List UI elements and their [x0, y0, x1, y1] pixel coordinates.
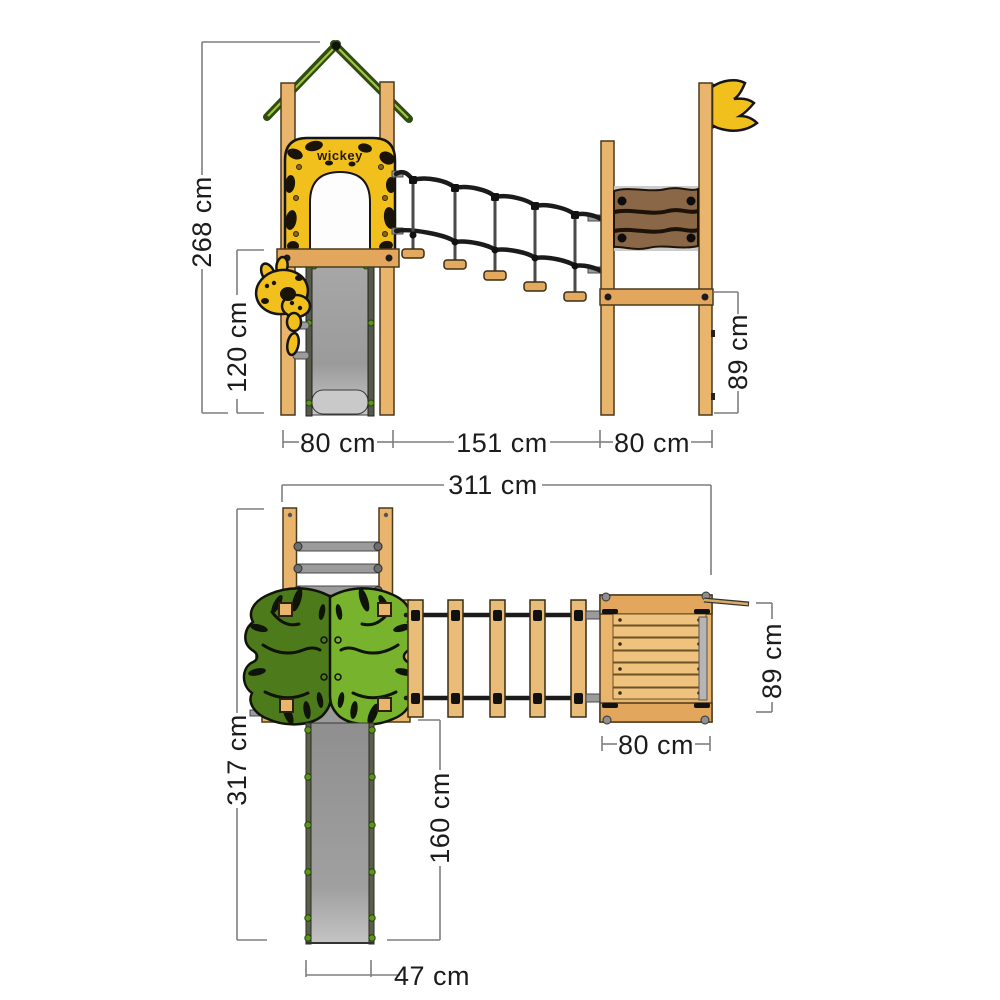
flag-icon [712, 80, 757, 131]
side-view: wickey [187, 42, 757, 576]
climbing-wall-panel [614, 186, 698, 251]
diagram-svg: wickey [0, 0, 1000, 1000]
dim-slide-length: 160 cm [425, 772, 455, 864]
dim-slide-width: 47 cm [394, 961, 470, 991]
leaf-panel-right [330, 587, 417, 725]
ladder-rungs [294, 542, 382, 595]
dim-slide-platform-height: 120 cm [222, 301, 252, 393]
deck-beam [277, 249, 399, 267]
dim-right-platform-depth: 89 cm [757, 623, 787, 699]
slide-plan [305, 723, 375, 944]
brand-logo: wickey [316, 148, 363, 163]
dim-bridge-span: 151 cm [456, 428, 548, 458]
dim-left-tower-width: 80 cm [300, 428, 376, 458]
wall-bar-plan [699, 617, 707, 700]
dim-right-platform-height: 89 cm [723, 314, 753, 390]
dim-right-tower-width: 80 cm [614, 428, 690, 458]
dim-total-depth: 317 cm [222, 714, 252, 806]
rope-bridge-side [392, 171, 603, 301]
platform-beam [600, 289, 713, 305]
dim-total-length: 311 cm [448, 470, 538, 500]
playground-dimension-diagram: wickey [0, 0, 1000, 1000]
rope-bridge-plan [406, 600, 618, 717]
platform-plan [600, 592, 749, 724]
hanging-steps [402, 176, 586, 301]
plan-view: 317 cm 160 cm 89 cm 80 cm 47 cm [222, 508, 787, 991]
right-tower-post-left [601, 141, 614, 415]
dim-total-height: 268 cm [187, 176, 217, 268]
right-tower-post-right [699, 83, 712, 415]
deck-planks [613, 614, 706, 699]
dim-right-platform-width: 80 cm [618, 730, 694, 760]
slide-front [293, 246, 374, 416]
